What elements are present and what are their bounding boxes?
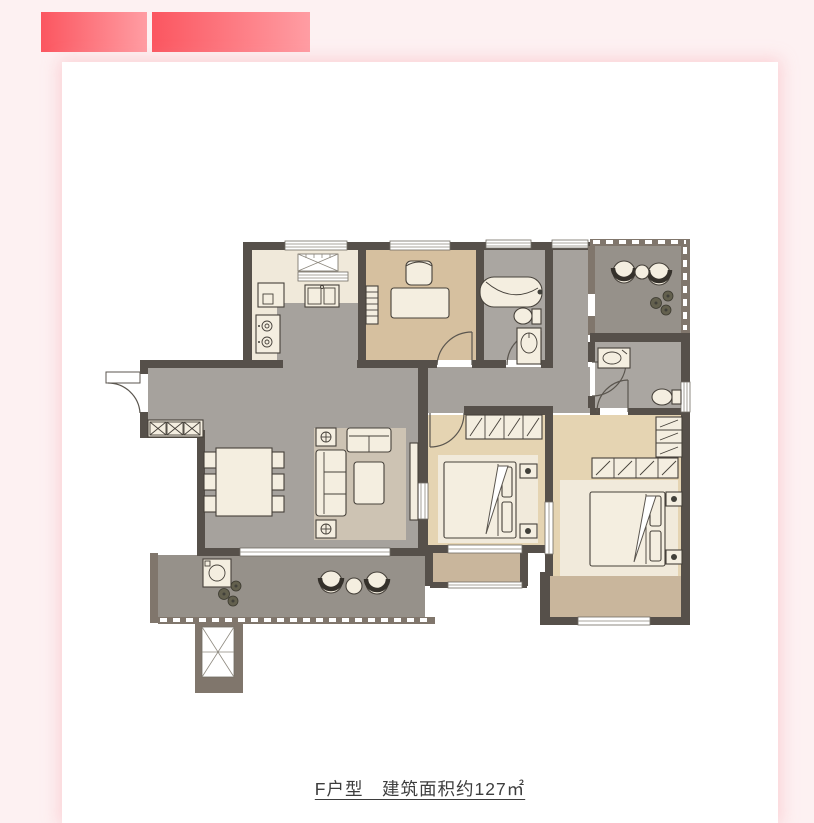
desk-chair-icon [406, 261, 432, 285]
lounge-chair-icon [366, 572, 388, 594]
lounge-chair-icon [320, 571, 342, 593]
nightstand-icon [666, 492, 682, 506]
balcony-sliding-door [240, 548, 390, 556]
bathtub-icon [480, 277, 543, 307]
second-bathroom-window [681, 382, 690, 412]
kitchen-walkway-floor [277, 303, 358, 368]
kitchen-counter-icon [258, 283, 284, 307]
toilet-icon [652, 389, 681, 405]
floorplan-image [100, 230, 700, 700]
tv-cabinet-icon [410, 443, 418, 520]
bedroom-side-window [418, 483, 428, 519]
study-top-window [390, 241, 450, 250]
master-bay-window-floor [550, 576, 681, 617]
duct-shaft-icon [202, 627, 234, 677]
kitchen-pass-window [298, 272, 348, 281]
double-bed-icon [590, 492, 665, 566]
toilet-icon [514, 308, 541, 324]
kitchen-top-window [285, 241, 347, 250]
side-table-icon [316, 428, 336, 446]
wardrobe-icon [466, 415, 542, 439]
stove-icon [256, 315, 280, 353]
lounge-chair-icon [648, 263, 670, 285]
entry-door [106, 372, 140, 413]
loveseat-icon [347, 428, 391, 452]
nightstand-icon [520, 524, 537, 538]
bookshelf-icon [366, 286, 378, 324]
master-bay-window [578, 617, 650, 625]
caption-text: F户型 建筑面积约127㎡ [315, 779, 525, 799]
sofa-icon [316, 450, 346, 516]
master-side-window [545, 502, 553, 554]
washbasin-icon [598, 348, 630, 368]
bathroom-top-window [486, 240, 531, 248]
bedroom-bay-window [448, 582, 522, 588]
washing-machine-icon [203, 559, 231, 587]
kitchen-sink-icon [305, 285, 339, 307]
side-table-icon [316, 520, 336, 538]
shoe-cabinet-icon [148, 420, 203, 437]
desk-icon [391, 288, 449, 318]
wardrobe-icon [592, 458, 678, 478]
dining-set-icon [204, 448, 284, 516]
banner-segment-1 [41, 12, 147, 52]
leisure-balcony-floor [595, 246, 681, 333]
flue-shaft-icon [298, 254, 338, 271]
bedroom-bottom-window [448, 545, 522, 553]
nightstand-icon [520, 464, 537, 478]
round-table-icon [346, 578, 362, 594]
lounge-chair-icon [613, 261, 635, 283]
coffee-table-icon [354, 462, 384, 504]
round-table-icon [635, 265, 649, 279]
bedroom-bay-window-floor [433, 553, 520, 582]
nightstand-icon [666, 550, 682, 564]
double-bed-icon [444, 462, 516, 538]
content-card: F户型 建筑面积约127㎡ [62, 62, 778, 823]
wardrobe-icon [656, 417, 682, 457]
washbasin-cabinet-icon [517, 328, 541, 364]
floorplan-caption: F户型 建筑面积约127㎡ [62, 776, 778, 801]
corridor-top-window [552, 240, 588, 248]
banner-segment-2 [152, 12, 310, 52]
